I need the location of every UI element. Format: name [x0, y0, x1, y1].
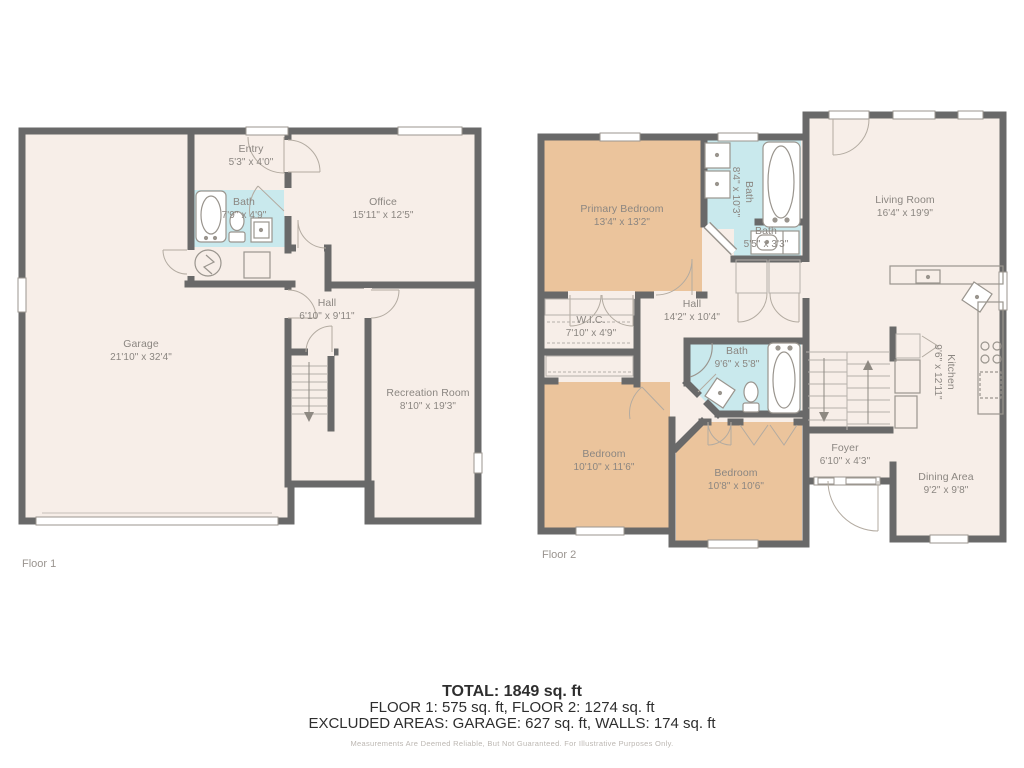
floor1-footprint — [22, 131, 478, 521]
floorplan-canvas — [0, 0, 1024, 768]
room-name: W.I.C. — [566, 314, 616, 327]
room-name: Primary Bedroom — [580, 203, 663, 216]
living-door-opening — [829, 111, 869, 119]
room-name: Bath — [744, 225, 789, 238]
front-door-opening — [246, 127, 288, 135]
summary-total: TOTAL: 1849 sq. ft — [0, 683, 1024, 700]
summary-excluded: EXCLUDED AREAS: GARAGE: 627 sq. ft, WALL… — [0, 716, 1024, 732]
room-label-garage: Garage 21'10" x 32'4" — [110, 338, 172, 364]
room-dims: 9'6" x 12'11" — [931, 344, 944, 399]
room-name: Bath — [715, 345, 760, 358]
room-label-wic: W.I.C. 7'10" x 4'9" — [566, 314, 616, 340]
living-window-1 — [893, 111, 935, 119]
room-dims: 8'10" x 19'3" — [386, 400, 469, 413]
recreation-window — [474, 453, 482, 473]
room-dims: 10'8" x 10'6" — [708, 480, 764, 493]
living-window-2 — [958, 111, 983, 119]
room-dims: 7'9" x 4'9" — [222, 209, 267, 222]
primary-bedroom-window — [600, 133, 640, 141]
room-dims: 6'10" x 4'3" — [820, 455, 870, 468]
garage-side-door — [18, 278, 26, 312]
room-label-entry: Entry 5'3" x 4'0" — [229, 143, 274, 169]
floor1-plan — [18, 127, 482, 525]
toilet-icon — [744, 382, 758, 402]
room-dims: 21'10" x 32'4" — [110, 351, 172, 364]
room-dims: 6'10" x 9'11" — [299, 310, 354, 323]
room-name: Hall — [299, 297, 354, 310]
room-name: Bedroom — [573, 448, 634, 461]
room-dims: 7'10" x 4'9" — [566, 327, 616, 340]
room-name: Hall — [664, 298, 720, 311]
garage-door — [36, 517, 278, 525]
floorplan-page: Garage 21'10" x 32'4" Entry 5'3" x 4'0" … — [0, 0, 1024, 768]
room-label-hall2: Hall 14'2" x 10'4" — [664, 298, 720, 324]
room-label-bedroom-a: Bedroom 10'10" x 11'6" — [573, 448, 634, 474]
room-name: Entry — [229, 143, 274, 156]
room-label-foyer: Foyer 6'10" x 4'3" — [820, 442, 870, 468]
floor2-caption: Floor 2 — [542, 549, 576, 561]
room-label-hall1: Hall 6'10" x 9'11" — [299, 297, 354, 323]
summary-disclaimer: Measurements Are Deemed Reliable, But No… — [0, 739, 1024, 748]
bedroom-b-window — [708, 540, 758, 548]
room-name: Living Room — [875, 194, 934, 207]
room-name: Garage — [110, 338, 172, 351]
room-dims: 16'4" x 19'9" — [875, 207, 934, 220]
room-name: Bath — [742, 167, 755, 217]
area-summary: TOTAL: 1849 sq. ft FLOOR 1: 575 sq. ft, … — [0, 683, 1024, 748]
room-name: Bath — [222, 196, 267, 209]
room-name: Bedroom — [708, 467, 764, 480]
room-name: Foyer — [820, 442, 870, 455]
room-label-dining: Dining Area 9'2" x 9'8" — [918, 471, 973, 497]
floor1-caption: Floor 1 — [22, 558, 56, 570]
room-label-hall-bath: Bath 9'6" x 5'8" — [715, 345, 760, 371]
foyer-entry-door-swing — [828, 481, 878, 531]
room-dims: 9'2" x 9'8" — [918, 484, 973, 497]
room-label-bath1: Bath 7'9" x 4'9" — [222, 196, 267, 222]
room-label-living-room: Living Room 16'4" x 19'9" — [875, 194, 934, 220]
room-dims: 8'4" x 10'3" — [729, 167, 742, 217]
room-dims: 15'11" x 12'5" — [352, 209, 413, 222]
room-dims: 10'10" x 11'6" — [573, 461, 634, 474]
office-window — [398, 127, 462, 135]
room-label-recreation: Recreation Room 8'10" x 19'3" — [386, 387, 469, 413]
primary-bath-window — [718, 133, 758, 141]
room-dims: 5'3" x 4'0" — [229, 156, 274, 169]
room-dims: 9'6" x 5'8" — [715, 358, 760, 371]
dining-window — [930, 535, 968, 543]
room-dims: 14'2" x 10'4" — [664, 311, 720, 324]
room-name: Office — [352, 196, 413, 209]
summary-floors: FLOOR 1: 575 sq. ft, FLOOR 2: 1274 sq. f… — [0, 700, 1024, 716]
room-dims: 5'5" x 3'3" — [744, 238, 789, 251]
room-label-primary-bath: Bath 8'4" x 10'3" — [729, 167, 755, 217]
bedroom-a-window — [576, 527, 624, 535]
room-label-small-bath: Bath 5'5" x 3'3" — [744, 225, 789, 251]
room-name: Dining Area — [918, 471, 973, 484]
room-label-office: Office 15'11" x 12'5" — [352, 196, 413, 222]
room-label-kitchen: Kitchen 9'6" x 12'11" — [931, 344, 957, 399]
room-label-bedroom-b: Bedroom 10'8" x 10'6" — [708, 467, 764, 493]
room-name: Recreation Room — [386, 387, 469, 400]
room-label-primary-bedroom: Primary Bedroom 13'4" x 13'2" — [580, 203, 663, 229]
room-dims: 13'4" x 13'2" — [580, 216, 663, 229]
room-name: Kitchen — [944, 344, 957, 399]
